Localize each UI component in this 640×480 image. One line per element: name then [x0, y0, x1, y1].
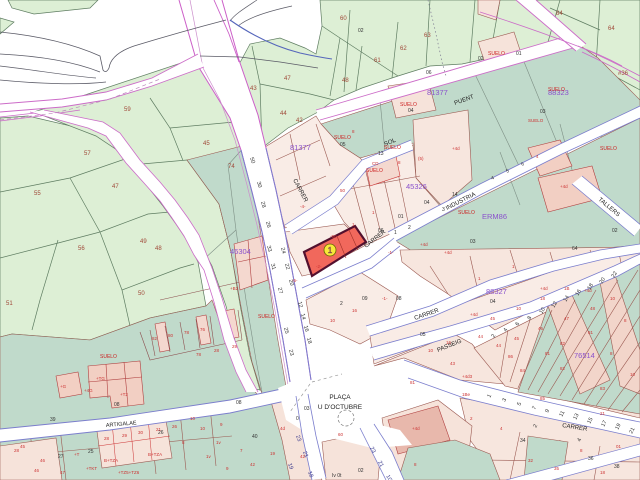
svg-text:1: 1 [394, 230, 397, 236]
svg-text:(5): (5) [418, 156, 424, 161]
svg-text:50: 50 [340, 188, 346, 193]
svg-text:81377: 81377 [290, 143, 311, 152]
svg-text:26: 26 [172, 424, 178, 429]
svg-text:29: 29 [122, 433, 128, 438]
svg-text:02: 02 [358, 28, 364, 34]
svg-text:39: 39 [50, 417, 56, 423]
svg-text:SUELO: SUELO [258, 314, 275, 320]
svg-text:CD: CD [372, 161, 379, 166]
svg-text:SUELO: SUELO [384, 145, 401, 151]
svg-text:84: 84 [556, 11, 563, 17]
svg-text:78: 78 [184, 330, 190, 335]
svg-text:49: 49 [140, 239, 147, 245]
svg-text:85: 85 [540, 396, 546, 401]
svg-text:46: 46 [538, 326, 544, 331]
svg-text:02: 02 [612, 228, 618, 234]
svg-text:02: 02 [478, 56, 484, 62]
svg-text:13: 13 [378, 151, 384, 157]
svg-text:+T: +T [74, 452, 80, 457]
svg-text:50: 50 [138, 291, 145, 297]
svg-text:81: 81 [410, 380, 416, 385]
svg-text:81: 81 [545, 351, 551, 356]
svg-text:18: 18 [540, 296, 546, 301]
svg-text:+TG: +TG [96, 376, 105, 381]
svg-text:1: 1 [328, 246, 333, 255]
svg-text:01: 01 [398, 214, 404, 220]
svg-text:08: 08 [236, 400, 242, 406]
svg-text:28: 28 [214, 348, 220, 353]
svg-text:01: 01 [516, 51, 522, 57]
svg-text:08: 08 [114, 402, 120, 408]
svg-text:61: 61 [374, 58, 381, 64]
svg-text:+4d: +4d [584, 288, 592, 293]
svg-text:-5-: -5- [292, 278, 298, 283]
svg-text:1Be: 1Be [462, 392, 471, 397]
svg-text:4d: 4d [280, 426, 286, 431]
svg-text:47: 47 [112, 184, 119, 190]
svg-text:+4d: +4d [560, 184, 568, 189]
svg-text:44: 44 [280, 111, 287, 117]
svg-text:#36: #36 [618, 71, 629, 77]
svg-text:36: 36 [588, 456, 594, 462]
svg-text:82: 82 [152, 336, 158, 341]
svg-text:40: 40 [252, 434, 258, 440]
svg-text:46: 46 [40, 458, 46, 463]
svg-text:04: 04 [490, 299, 496, 305]
svg-text:81: 81 [588, 330, 594, 335]
svg-text:83: 83 [600, 386, 606, 391]
svg-text:63: 63 [424, 33, 431, 39]
svg-text:B+TZA: B+TZA [148, 452, 162, 457]
svg-text:2: 2 [340, 301, 343, 307]
svg-text:04: 04 [424, 200, 430, 206]
svg-text:55: 55 [34, 191, 41, 197]
svg-text:14: 14 [452, 192, 458, 198]
svg-text:+4d: +4d [470, 312, 478, 317]
svg-text:08: 08 [396, 296, 402, 302]
svg-text:10: 10 [190, 416, 196, 421]
svg-text:78: 78 [196, 352, 202, 357]
svg-text:44: 44 [496, 343, 502, 348]
svg-text:19: 19 [270, 451, 276, 456]
svg-text:45326: 45326 [406, 182, 427, 191]
svg-text:47: 47 [60, 470, 66, 475]
svg-text:21: 21 [600, 411, 606, 416]
svg-text:32: 32 [528, 458, 534, 463]
svg-text:80: 80 [168, 333, 174, 338]
svg-text:02: 02 [358, 468, 364, 474]
svg-text:64: 64 [572, 246, 578, 252]
svg-text:SUELO: SUELO [366, 168, 383, 174]
svg-text:10: 10 [630, 372, 636, 377]
svg-text:25: 25 [88, 449, 94, 455]
svg-text:ERM86: ERM86 [482, 212, 507, 221]
svg-text:SUELO: SUELO [100, 354, 117, 360]
svg-text:06: 06 [378, 228, 384, 234]
svg-text:+4d3: +4d3 [462, 374, 473, 379]
svg-text:SUELO: SUELO [528, 118, 544, 123]
svg-text:01: 01 [616, 444, 622, 449]
svg-text:+T2: +T2 [120, 392, 128, 397]
svg-text:45: 45 [514, 336, 520, 341]
svg-text:04: 04 [408, 108, 414, 114]
svg-text:05: 05 [420, 332, 426, 338]
svg-text:45: 45 [203, 141, 210, 147]
svg-text:+TZ5+TZ6: +TZ5+TZ6 [118, 470, 140, 475]
svg-text:27: 27 [58, 454, 64, 460]
svg-text:SUELO: SUELO [458, 210, 475, 216]
svg-text:30: 30 [138, 430, 144, 435]
svg-text:1v: 1v [216, 440, 222, 445]
svg-text:46304: 46304 [230, 247, 251, 256]
svg-text:+B2: +B2 [230, 286, 239, 291]
svg-text:47: 47 [564, 316, 570, 321]
svg-text:03: 03 [540, 109, 546, 115]
svg-text:1B: 1B [564, 286, 570, 291]
svg-text:56: 56 [78, 246, 85, 252]
svg-text:59: 59 [124, 107, 131, 113]
svg-text:16: 16 [352, 308, 358, 313]
svg-text:10: 10 [200, 426, 206, 431]
svg-text:42: 42 [300, 454, 306, 459]
svg-text:48: 48 [155, 246, 162, 252]
svg-text:2: 2 [408, 225, 411, 231]
svg-text:-1-: -1- [388, 250, 394, 255]
svg-text:1v: 1v [206, 454, 212, 459]
svg-text:42: 42 [296, 118, 303, 124]
svg-text:48: 48 [342, 78, 349, 84]
svg-text:43: 43 [450, 361, 456, 366]
svg-text:09: 09 [362, 296, 368, 302]
svg-text:0: 0 [296, 416, 299, 422]
svg-text:82: 82 [560, 366, 566, 371]
svg-text:+4d: +4d [412, 426, 420, 431]
svg-text:10: 10 [428, 348, 434, 353]
svg-text:62: 62 [400, 46, 407, 52]
svg-text:-1-: -1- [382, 296, 388, 301]
svg-text:84: 84 [520, 368, 526, 373]
svg-text:+4d: +4d [444, 250, 452, 255]
svg-text:29: 29 [232, 344, 238, 349]
svg-text:SUELO: SUELO [334, 135, 351, 141]
svg-text:06: 06 [426, 70, 432, 76]
svg-text:+4d: +4d [452, 146, 460, 151]
svg-text:76514: 76514 [574, 351, 595, 360]
svg-text:Iv 0t: Iv 0t [332, 473, 342, 479]
svg-text:57: 57 [84, 151, 91, 157]
svg-text:81377: 81377 [427, 88, 448, 97]
svg-text:60: 60 [340, 16, 347, 22]
svg-text:PLAÇA: PLAÇA [329, 394, 351, 401]
svg-text:03: 03 [470, 239, 476, 245]
svg-text:42: 42 [250, 462, 256, 467]
svg-text:51: 51 [6, 301, 13, 307]
svg-text:05: 05 [340, 142, 346, 148]
svg-text:SUELO: SUELO [548, 87, 565, 93]
svg-text:34: 34 [520, 438, 526, 444]
svg-text:64: 64 [608, 26, 615, 32]
svg-text:47: 47 [284, 76, 291, 82]
svg-text:10: 10 [330, 318, 336, 323]
svg-text:86: 86 [508, 354, 514, 359]
svg-text:76: 76 [200, 327, 206, 332]
svg-text:28: 28 [14, 448, 20, 453]
svg-text:SUELO: SUELO [488, 51, 505, 57]
svg-text:-50-: -50- [330, 234, 339, 239]
svg-text:10: 10 [610, 296, 616, 301]
svg-text:SUELO: SUELO [600, 146, 617, 152]
svg-text:16: 16 [446, 340, 452, 345]
svg-text:-4-: -4- [300, 204, 306, 209]
svg-text:+4G: +4G [84, 388, 93, 393]
svg-text:45: 45 [20, 444, 26, 449]
svg-text:18: 18 [600, 470, 606, 475]
svg-text:35: 35 [554, 466, 560, 471]
svg-text:74: 74 [228, 164, 235, 170]
svg-text:60: 60 [338, 432, 344, 437]
svg-text:+G: +G [60, 384, 67, 389]
svg-text:28: 28 [104, 436, 110, 441]
svg-text:43: 43 [250, 86, 257, 92]
svg-text:-2-: -2- [316, 264, 322, 269]
svg-text:3: 3 [442, 207, 445, 213]
svg-text:03: 03 [304, 406, 310, 412]
svg-text:+4d: +4d [420, 242, 428, 247]
svg-text:B+TZA: B+TZA [104, 458, 118, 463]
svg-text:48: 48 [590, 306, 596, 311]
svg-text:45: 45 [490, 316, 496, 321]
svg-text:88327: 88327 [486, 287, 507, 296]
svg-text:82: 82 [560, 341, 566, 346]
svg-text:+4d: +4d [540, 286, 548, 291]
svg-text:21: 21 [156, 427, 162, 432]
svg-text:38: 38 [614, 464, 620, 470]
svg-text:44: 44 [478, 334, 484, 339]
svg-text:46: 46 [34, 468, 40, 473]
svg-text:10: 10 [516, 306, 522, 311]
svg-text:+TKT: +TKT [86, 466, 97, 471]
svg-text:U D'OCTUBRE: U D'OCTUBRE [318, 404, 363, 411]
